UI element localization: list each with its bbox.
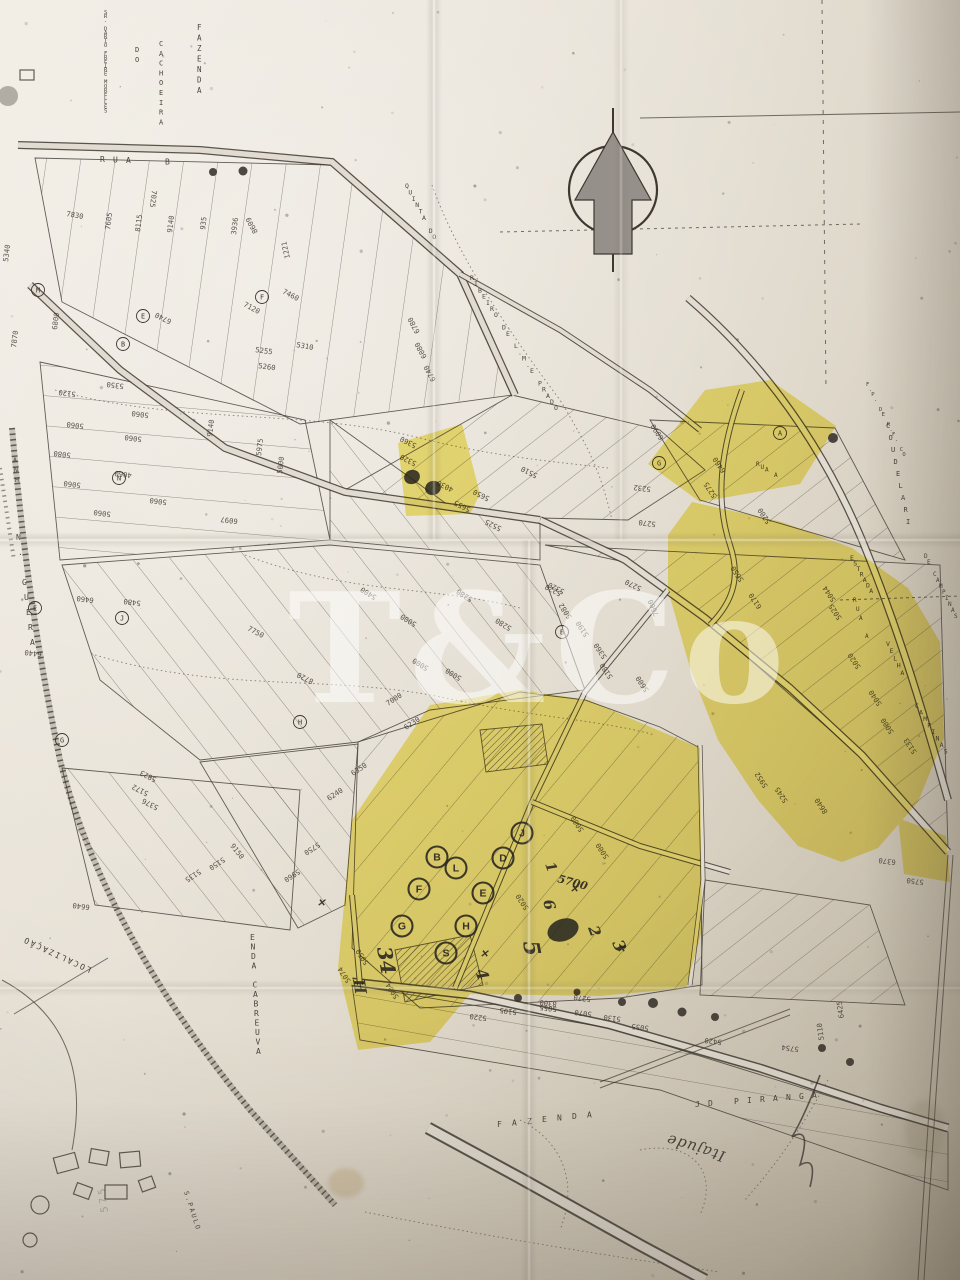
- ink-dot: [711, 1013, 719, 1021]
- lot-number: 6370: [878, 856, 896, 867]
- lot-number: 5754: [781, 1043, 799, 1054]
- north-arrow: [569, 108, 657, 272]
- ink-dot: [818, 1044, 826, 1052]
- lot-number: 7870: [9, 330, 20, 348]
- hand-letter: J: [519, 828, 525, 840]
- map-label: FAZENDA: [197, 23, 202, 95]
- svg-text:B: B: [121, 341, 125, 349]
- map-label: 575: [96, 1185, 111, 1213]
- watermark: T&Co: [288, 559, 793, 738]
- lot-number: 6640: [72, 901, 90, 912]
- map-label: ENDACABREUVA: [250, 933, 261, 1056]
- lot-number: 5420: [704, 1036, 722, 1047]
- ink-dot: [678, 1008, 687, 1017]
- lot-number: 5055: [631, 1022, 649, 1033]
- map-label: S.PAULO: [182, 1190, 202, 1232]
- hand-letter: G: [398, 921, 406, 933]
- lot-number: 6425: [835, 1001, 846, 1019]
- hand-cross-mark: ✕: [617, 944, 626, 955]
- hand-letter: E: [479, 888, 486, 900]
- map-label: LOCALIZAÇÃO: [21, 934, 93, 975]
- lot-number: 5750: [906, 876, 924, 887]
- map-label: Itajude: [664, 1130, 728, 1165]
- hand-cross-mark: ✕: [570, 884, 579, 895]
- svg-text:N: N: [117, 475, 121, 483]
- hand-letter: H: [462, 921, 470, 933]
- svg-text:M: M: [36, 287, 40, 295]
- svg-text:E: E: [33, 605, 37, 613]
- map-label: CACHOEIRA: [159, 40, 164, 126]
- lot-number: 5070: [574, 1008, 592, 1019]
- lot-number: 5130: [603, 1013, 621, 1024]
- ink-dot: [209, 168, 217, 176]
- ink-dot: [648, 998, 658, 1008]
- ink-dot: [846, 1058, 854, 1066]
- north-arrow-glyph: [575, 132, 651, 254]
- map-label: DO: [135, 46, 139, 64]
- hand-letter: L: [453, 863, 460, 875]
- hand-cross-mark: ✕: [317, 898, 326, 909]
- lot-number: 5270: [638, 518, 656, 529]
- ink-dot: [239, 167, 248, 176]
- lot-number: 5110: [815, 1023, 826, 1041]
- map-label: FAZENDA: [497, 1110, 592, 1129]
- svg-text:E: E: [141, 313, 145, 321]
- hand-letter: F: [416, 884, 423, 896]
- map-label: SR.DARIOFREIREMORELLES: [104, 10, 108, 114]
- hand-cross-mark: ✕: [480, 949, 489, 960]
- hand-letter: D: [499, 853, 507, 865]
- circled-letter-marker: B: [117, 338, 130, 351]
- svg-text:J: J: [120, 615, 124, 623]
- lot-number: 6800: [50, 312, 61, 330]
- hand-letter: B: [433, 852, 441, 864]
- cadastral-map: 7025783076058115914093539368609122153407…: [0, 0, 960, 1280]
- map-photo: 7025783076058115914093539368609122153407…: [0, 0, 960, 1280]
- hand-number: 34: [372, 945, 400, 977]
- svg-text:F: F: [260, 294, 264, 302]
- lot-number: 935: [198, 216, 209, 230]
- map-label: COUDELARI: [886, 422, 910, 526]
- ink-dot: [618, 998, 626, 1006]
- map-label: F.P.DER.F.CO: [866, 382, 906, 458]
- lot-number: 5340: [1, 244, 12, 262]
- hand-letter: S: [442, 948, 449, 960]
- ink-dot: [514, 994, 522, 1002]
- svg-text:G: G: [60, 737, 64, 745]
